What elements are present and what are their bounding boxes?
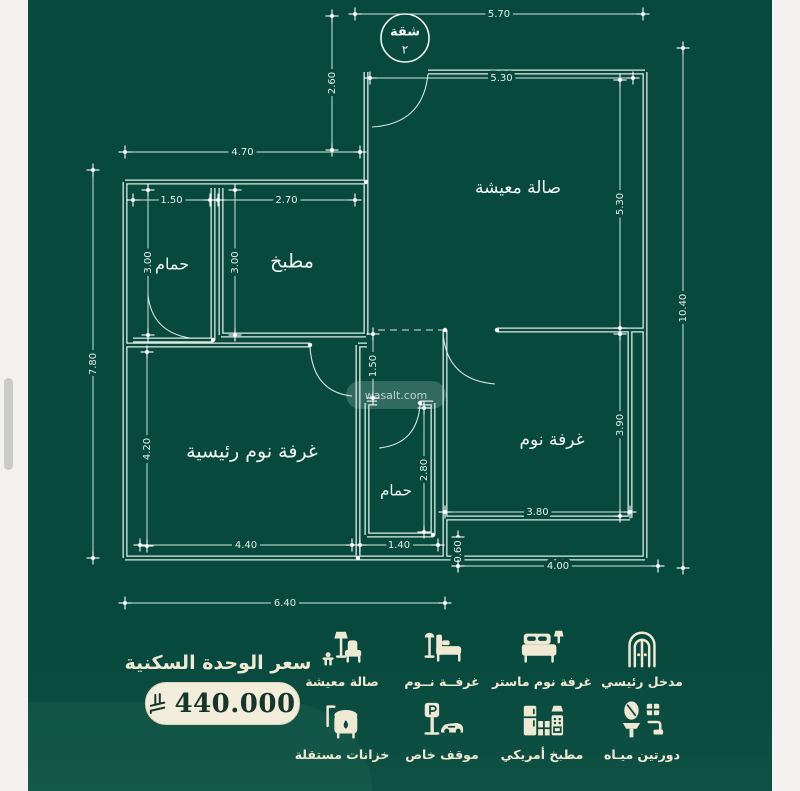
- svg-text:3.80: 3.80: [526, 507, 548, 518]
- svg-text:6.40: 6.40: [274, 598, 296, 609]
- watermark-text: wasalt.com: [365, 389, 428, 402]
- svg-text:5.30: 5.30: [490, 73, 512, 84]
- entrance-door-arc: [372, 74, 428, 127]
- svg-text:2.60: 2.60: [327, 72, 338, 94]
- feature-entrance: مدخل رئيسي: [592, 626, 692, 689]
- dimension-3.00: 3.00: [229, 184, 242, 342]
- dimension-2.80: 2.80: [418, 402, 431, 539]
- dimension-1.50: 1.50: [127, 194, 217, 207]
- entrance-icon: [619, 626, 665, 672]
- bathroom1-door-arc: [148, 295, 190, 338]
- dimension-2.70: 2.70: [212, 194, 362, 207]
- saudi-riyal-icon: [149, 693, 167, 715]
- feature-bed: غرفــة نــوم: [392, 626, 492, 689]
- feature-label: موقف خاص: [405, 747, 479, 762]
- svg-text:5.70: 5.70: [488, 9, 510, 20]
- features-grid: مدخل رئيسيغرفة نوم ماسترغرفــة نــومصالة…: [292, 626, 692, 772]
- svg-text:2.70: 2.70: [275, 195, 297, 206]
- features-row-1: مدخل رئيسيغرفة نوم ماسترغرفــة نــومصالة…: [292, 626, 692, 699]
- svg-text:4.70: 4.70: [231, 147, 253, 158]
- feature-label: مطبخ أمريكي: [501, 747, 584, 762]
- dimension-4.40: 4.40: [134, 539, 359, 552]
- svg-text:4.00: 4.00: [547, 561, 569, 572]
- svg-text:2.80: 2.80: [419, 459, 430, 481]
- svg-text:4.20: 4.20: [142, 438, 153, 460]
- svg-text:3.00: 3.00: [230, 251, 241, 273]
- feature-wc: دورتين ميـاه: [592, 699, 692, 762]
- kitchen-icon: [519, 699, 565, 745]
- svg-text:7.80: 7.80: [88, 353, 99, 375]
- unit-number-badge: شقة ٢: [381, 14, 429, 62]
- dimension-1.40: 1.40: [354, 539, 445, 552]
- svg-text:3.00: 3.00: [143, 251, 154, 273]
- unit-badge-number: ٢: [402, 43, 408, 57]
- dimension-2.60: 2.60: [326, 10, 339, 157]
- dimension-5.30: 5.30: [614, 74, 627, 335]
- wc-icon: [619, 699, 665, 745]
- room-label: حمام: [155, 255, 189, 274]
- price-amount: 440.000: [174, 689, 295, 719]
- watermark: wasalt.com: [346, 381, 446, 409]
- features-row-2: دورتين ميـاهمطبخ أمريكيموقف خاصخزانات مس…: [292, 699, 692, 772]
- dimension-10.40: 10.40: [677, 42, 690, 575]
- parking-icon: [419, 699, 465, 745]
- svg-text:1.50: 1.50: [160, 195, 182, 206]
- svg-text:10.40: 10.40: [678, 294, 689, 323]
- left-scrollbar-track: [0, 0, 28, 791]
- feature-label: غرفة نوم ماستر: [492, 674, 592, 689]
- room-label: صالة معيشة: [475, 178, 561, 198]
- feature-living: صالة معيشة: [292, 626, 392, 689]
- svg-text:3.90: 3.90: [615, 414, 626, 436]
- svg-text:1.40: 1.40: [388, 540, 410, 551]
- bathroom2-door-arc: [379, 405, 420, 448]
- bedroom-door-arc: [443, 332, 495, 384]
- room-label: غرفة نوم: [520, 430, 585, 450]
- dimension-3.90: 3.90: [614, 328, 627, 523]
- svg-text:4.40: 4.40: [235, 540, 257, 551]
- scrollbar-thumb[interactable]: [4, 378, 13, 470]
- living-icon: [319, 626, 365, 672]
- room-label: مطبخ: [270, 251, 314, 273]
- svg-text:0.60: 0.60: [453, 540, 464, 562]
- wall-junction-dots: [211, 180, 499, 560]
- feature-kitchen: مطبخ أمريكي: [492, 699, 592, 762]
- right-page-margin: [772, 0, 800, 791]
- dimension-7.80: 7.80: [87, 164, 100, 565]
- dimension-4.00: 4.00: [452, 560, 665, 573]
- room-label: حمام: [380, 482, 412, 500]
- svg-text:1.50: 1.50: [368, 355, 379, 377]
- floorplan-page: 5.705.302.604.701.502.703.003.007.805.30…: [0, 0, 800, 791]
- dimension-3.00: 3.00: [142, 184, 155, 342]
- bed-icon: [419, 626, 465, 672]
- masterbed-icon: [519, 626, 565, 672]
- feature-tanks: خزانات مستقلة: [292, 699, 392, 762]
- feature-parking: موقف خاص: [392, 699, 492, 762]
- feature-label: خزانات مستقلة: [295, 747, 390, 762]
- dimension-5.70: 5.70: [349, 8, 650, 21]
- feature-label: دورتين ميـاه: [604, 747, 680, 762]
- unit-badge-title: شقة: [390, 25, 420, 40]
- dimension-6.40: 6.40: [119, 597, 452, 610]
- feature-label: صالة معيشة: [305, 674, 379, 689]
- dimension-4.20: 4.20: [141, 346, 154, 553]
- price-pill: 440.000: [145, 682, 300, 725]
- feature-label: غرفــة نــوم: [404, 674, 479, 689]
- feature-label: مدخل رئيسي: [601, 674, 683, 689]
- tanks-icon: [319, 699, 365, 745]
- room-label: غرفة نوم رئيسية: [186, 441, 318, 463]
- feature-masterbed: غرفة نوم ماستر: [492, 626, 592, 689]
- dimension-4.70: 4.70: [119, 146, 367, 159]
- master-door-arc: [310, 347, 352, 396]
- svg-text:5.30: 5.30: [615, 193, 626, 215]
